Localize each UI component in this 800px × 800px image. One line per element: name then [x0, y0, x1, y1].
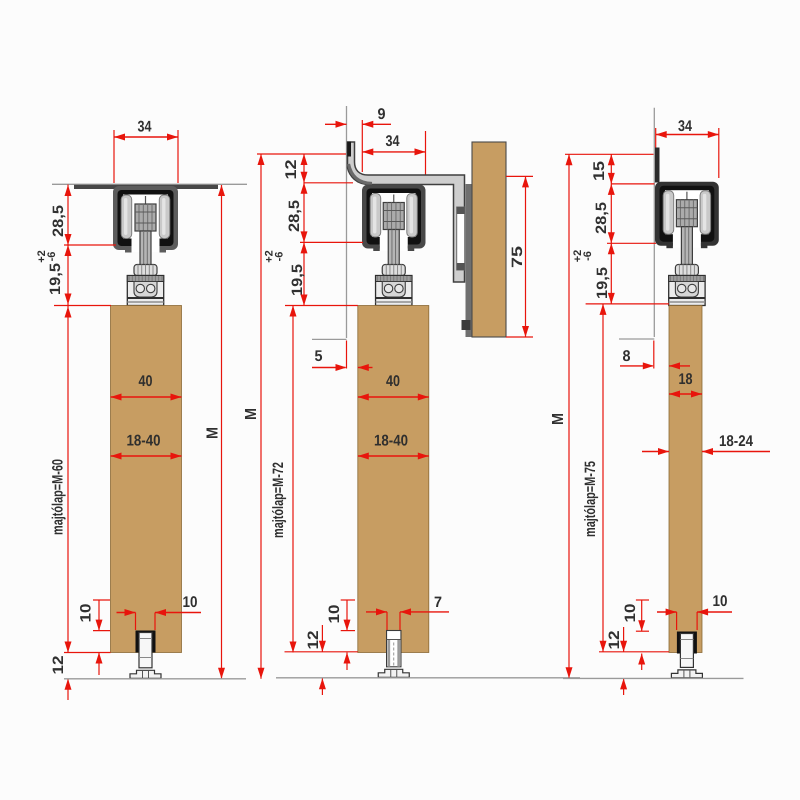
svg-text:28,5: 28,5 [50, 205, 67, 237]
svg-text:40: 40 [386, 373, 400, 390]
svg-text:12: 12 [305, 631, 322, 650]
svg-text:18-24: 18-24 [719, 433, 753, 450]
svg-text:10: 10 [622, 604, 639, 623]
svg-text:19,5: 19,5 [47, 263, 64, 295]
svg-text:28,5: 28,5 [286, 200, 303, 232]
svg-text:-6: -6 [46, 252, 58, 262]
svg-text:M: M [205, 427, 222, 439]
svg-text:12: 12 [283, 160, 300, 180]
svg-text:34: 34 [678, 118, 692, 135]
svg-text:M: M [550, 413, 567, 425]
svg-text:9: 9 [378, 106, 386, 123]
svg-text:18-40: 18-40 [127, 433, 161, 450]
svg-text:-6: -6 [582, 251, 594, 261]
svg-text:34: 34 [138, 119, 152, 136]
svg-text:19,5: 19,5 [289, 264, 306, 296]
svg-text:M: M [243, 408, 260, 420]
svg-text:10: 10 [78, 604, 95, 623]
svg-text:7: 7 [434, 594, 442, 611]
svg-text:10: 10 [183, 594, 198, 611]
svg-text:12: 12 [50, 656, 67, 675]
svg-text:10: 10 [713, 593, 728, 610]
svg-text:8: 8 [623, 348, 631, 365]
svg-text:12: 12 [606, 631, 623, 650]
svg-text:majtólap=M-72: majtólap=M-72 [270, 462, 287, 538]
svg-text:majtólap=M-75: majtólap=M-75 [582, 461, 599, 537]
svg-text:28,5: 28,5 [593, 202, 610, 234]
svg-text:75: 75 [509, 246, 526, 268]
svg-text:15: 15 [591, 161, 608, 181]
svg-text:34: 34 [386, 133, 400, 150]
svg-text:5: 5 [315, 348, 323, 365]
svg-text:40: 40 [139, 373, 153, 390]
svg-text:10: 10 [326, 605, 343, 624]
svg-text:18: 18 [679, 371, 693, 388]
svg-text:majtólap=M-60: majtólap=M-60 [50, 459, 67, 535]
svg-text:-6: -6 [274, 252, 286, 262]
svg-text:18-40: 18-40 [374, 433, 408, 450]
